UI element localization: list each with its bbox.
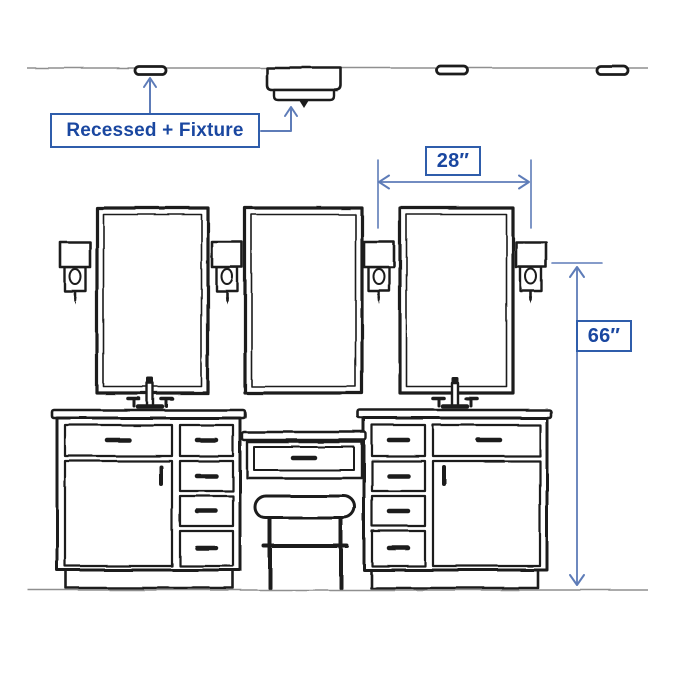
vanity-left [52, 410, 245, 588]
cabinet-door [65, 461, 172, 566]
mirror-center [245, 208, 362, 393]
vanity-right [358, 410, 551, 588]
cabinet-door [433, 461, 540, 566]
height-dimension-label: 66″ [576, 320, 632, 352]
stool [255, 496, 355, 588]
recessed-pointer-arrow [144, 78, 156, 113]
diagram-canvas [0, 0, 675, 675]
sconce-2 [212, 242, 242, 304]
height-dimension-66 [552, 263, 602, 585]
recessed-light-icon [597, 67, 628, 75]
recessed-light-icon [135, 67, 166, 75]
sconce-3 [364, 242, 394, 304]
makeup-counter [242, 432, 366, 478]
sconce-4 [516, 242, 546, 304]
recessed-light-icon [437, 67, 468, 75]
sconce-1 [60, 242, 90, 304]
vanity-lighting-diagram: Recessed + Fixture 28″ 66″ [0, 0, 675, 675]
toe-kick-right [371, 570, 538, 588]
mirror-right [400, 208, 513, 393]
mirror-left [97, 208, 208, 393]
ceiling-fixture-icon [267, 68, 341, 108]
stool-seat [255, 496, 355, 518]
toe-kick-left [66, 570, 233, 588]
width-dimension-label: 28″ [425, 146, 481, 176]
fixture-pointer-arrow [261, 107, 297, 131]
recessed-fixture-label: Recessed + Fixture [50, 113, 260, 148]
